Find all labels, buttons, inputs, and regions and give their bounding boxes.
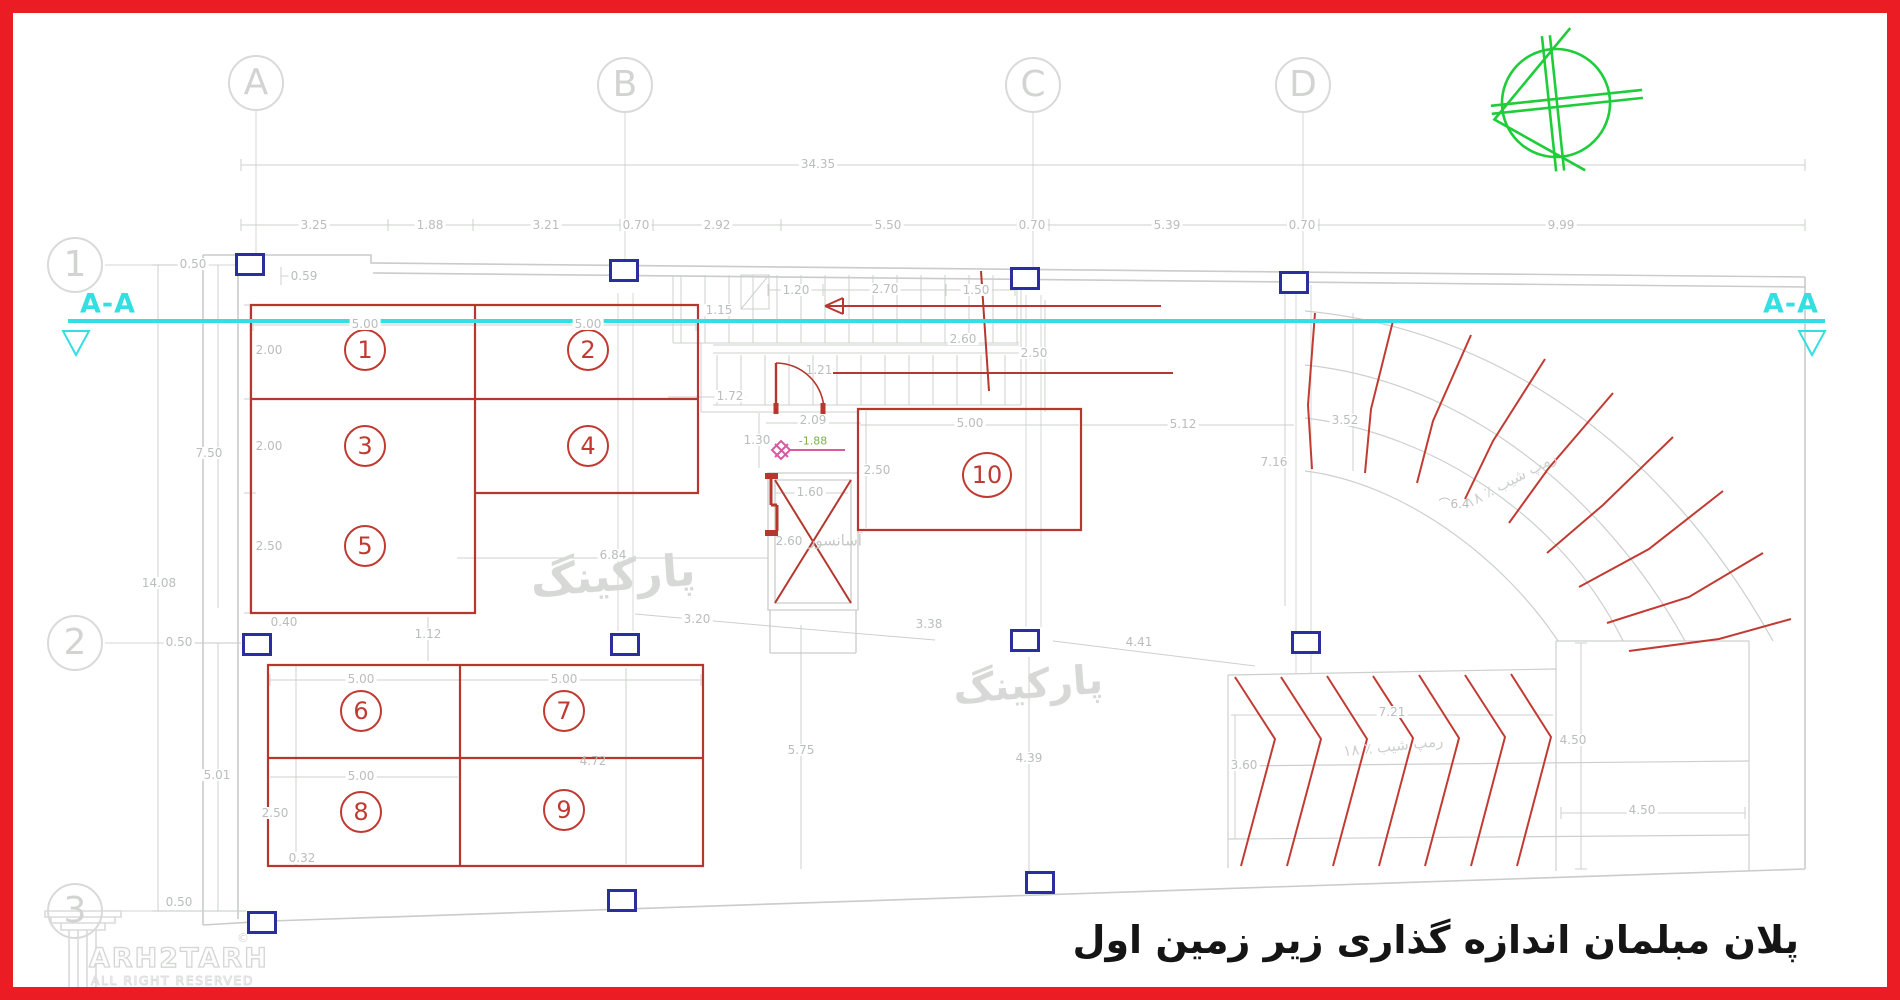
straight-ramp-edges bbox=[1228, 641, 1749, 871]
dim-ub-250: 2.50 bbox=[254, 540, 285, 552]
dim-lb-500b: 5.00 bbox=[549, 673, 580, 685]
dim-left-059: 0.59 bbox=[289, 270, 320, 282]
parking-spot-1: 1 bbox=[344, 329, 386, 371]
dim-el-160: 1.60 bbox=[795, 486, 826, 498]
dim-st-130: 1.30 bbox=[742, 434, 773, 446]
dim-lb-500c: 5.00 bbox=[346, 770, 377, 782]
section-line-a-a bbox=[63, 321, 1825, 355]
spot-8-number: 8 bbox=[353, 800, 368, 824]
dim-st-260: 2.60 bbox=[948, 333, 979, 345]
parking-spot-2: 2 bbox=[567, 329, 609, 371]
dim-st-150: 1.50 bbox=[961, 284, 992, 296]
column-r2-c bbox=[1010, 629, 1040, 652]
axis-row-1: 1 bbox=[47, 237, 103, 293]
dim-bt-439: 4.39 bbox=[1014, 752, 1045, 764]
dim-s10-500: 5.00 bbox=[955, 417, 986, 429]
axis-row-1-label: 1 bbox=[64, 247, 87, 283]
dim-lb-472: 4.72 bbox=[578, 755, 609, 767]
dim-el-260: 2.60 bbox=[774, 535, 805, 547]
parking-spot-3: 3 bbox=[344, 425, 386, 467]
spot-10-number: 10 bbox=[972, 463, 1003, 487]
dim-rp-450h: 4.50 bbox=[1627, 804, 1658, 816]
column-r2-b bbox=[610, 633, 640, 656]
dim-bt-338: 3.38 bbox=[914, 618, 945, 630]
column-r1-a bbox=[235, 253, 265, 276]
dim-rp-360: 3.60 bbox=[1229, 759, 1260, 771]
dim-top-1: 1.88 bbox=[415, 219, 446, 231]
copyright-icon: © bbox=[237, 931, 249, 945]
spot-7-number: 7 bbox=[556, 699, 571, 723]
dim-ub-500b: 5.00 bbox=[573, 318, 604, 330]
dim-lb-112: 1.12 bbox=[413, 628, 444, 640]
spot-2-number: 2 bbox=[580, 338, 595, 362]
brand-logo-text: ARH2TARH bbox=[89, 943, 269, 974]
dim-top-0: 3.25 bbox=[299, 219, 330, 231]
dim-st-209: 2.09 bbox=[798, 414, 829, 426]
dim-left-1408: 14.08 bbox=[140, 577, 178, 589]
floorplan-sheet: A B C D 1 2 3 A-A A-A 1 2 3 4 5 6 7 8 9 … bbox=[0, 0, 1900, 1000]
axis-col-d-label: D bbox=[1289, 67, 1317, 103]
dim-ub-500a: 5.00 bbox=[350, 318, 381, 330]
dim-lb-500a: 5.00 bbox=[346, 673, 377, 685]
spot-9-number: 9 bbox=[556, 798, 571, 822]
dim-top-5: 5.50 bbox=[873, 219, 904, 231]
axis-col-b: B bbox=[597, 57, 653, 113]
parking-spot-6: 6 bbox=[340, 690, 382, 732]
spot-4-number: 4 bbox=[580, 434, 595, 458]
level-marker-value: -1.88 bbox=[797, 436, 829, 447]
brand-logo: ARH2TARH © ALL RIGHT RESERVED bbox=[41, 883, 301, 1000]
dim-ub-200b: 2.00 bbox=[254, 440, 285, 452]
dim-rp-352: 3.52 bbox=[1330, 414, 1361, 426]
parking-spot-8: 8 bbox=[340, 791, 382, 833]
parking-spot-10: 10 bbox=[962, 452, 1012, 498]
axis-row-2: 2 bbox=[47, 615, 103, 671]
column-r1-d bbox=[1279, 271, 1309, 294]
sheet-title: پلان مبلمان اندازه گذاری زیر زمین اول bbox=[999, 918, 1799, 962]
dim-top-6: 0.70 bbox=[1017, 219, 1048, 231]
parking-spot-9: 9 bbox=[543, 789, 585, 831]
dim-st-121: 1.21 bbox=[804, 364, 835, 376]
dim-ub-040: 0.40 bbox=[269, 616, 300, 628]
dim-rp-450v: 4.50 bbox=[1558, 734, 1589, 746]
section-label-right: A-A bbox=[1763, 289, 1819, 320]
parking-spot-7: 7 bbox=[543, 690, 585, 732]
column-r3-b bbox=[607, 889, 637, 912]
dim-top-7: 5.39 bbox=[1152, 219, 1183, 231]
axis-col-a: A bbox=[228, 55, 284, 111]
dim-bt-441: 4.41 bbox=[1124, 636, 1155, 648]
spot-5-number: 5 bbox=[357, 534, 372, 558]
spot-3-number: 3 bbox=[357, 434, 372, 458]
axis-col-b-label: B bbox=[613, 67, 638, 103]
compass-icon bbox=[1484, 21, 1650, 179]
section-label-left: A-A bbox=[80, 289, 136, 320]
axis-row-2-label: 2 bbox=[64, 625, 87, 661]
spot-6-number: 6 bbox=[353, 699, 368, 723]
parking-block-lower bbox=[268, 665, 703, 866]
dim-lb-320: 3.20 bbox=[682, 613, 713, 625]
column-r1-b bbox=[609, 259, 639, 282]
dim-lb-250: 2.50 bbox=[260, 807, 291, 819]
elevator-label: آسانسور bbox=[806, 534, 864, 549]
dim-s10-250: 2.50 bbox=[862, 464, 893, 476]
dim-bt-575: 5.75 bbox=[786, 744, 817, 756]
dim-total-top: 34.35 bbox=[799, 158, 837, 170]
building-outline bbox=[203, 255, 1805, 925]
dim-rp-721: 7.21 bbox=[1377, 706, 1408, 718]
spot-1-number: 1 bbox=[357, 338, 372, 362]
dim-st-270: 2.70 bbox=[870, 283, 901, 295]
column-r3-c bbox=[1025, 871, 1055, 894]
dim-lb-032: 0.32 bbox=[287, 852, 318, 864]
dim-st-172: 1.72 bbox=[715, 390, 746, 402]
dim-ub-200a: 2.00 bbox=[254, 344, 285, 356]
dim-top-4: 2.92 bbox=[702, 219, 733, 231]
parking-spot-5: 5 bbox=[344, 525, 386, 567]
elevator-shaft bbox=[768, 473, 858, 653]
parking-spot-4: 4 bbox=[567, 425, 609, 467]
dim-st-120: 1.20 bbox=[781, 284, 812, 296]
dim-top-3: 0.70 bbox=[621, 219, 652, 231]
dim-left-050a: 0.50 bbox=[178, 258, 209, 270]
dim-left-501: 5.01 bbox=[202, 769, 233, 781]
axis-col-c-label: C bbox=[1020, 67, 1045, 103]
column-r2-a bbox=[242, 633, 272, 656]
axis-col-a-label: A bbox=[244, 65, 269, 101]
dim-left-050b: 0.50 bbox=[164, 636, 195, 648]
dim-top-8: 0.70 bbox=[1287, 219, 1318, 231]
dim-s10-512: 5.12 bbox=[1168, 418, 1199, 430]
axis-col-d: D bbox=[1275, 57, 1331, 113]
dim-top-9: 9.99 bbox=[1546, 219, 1577, 231]
axis-col-c: C bbox=[1005, 57, 1061, 113]
dim-left-750: 7.50 bbox=[194, 447, 225, 459]
brand-logo-subtext: ALL RIGHT RESERVED bbox=[91, 973, 254, 988]
curved-ramp-edges bbox=[1305, 311, 1773, 641]
dim-s10-716: 7.16 bbox=[1259, 456, 1290, 468]
dim-top-2: 3.21 bbox=[531, 219, 562, 231]
column-r1-c bbox=[1010, 267, 1040, 290]
curved-ramp-hatching bbox=[1308, 313, 1791, 651]
column-r2-d bbox=[1291, 631, 1321, 654]
dimension-lines bbox=[152, 159, 1805, 911]
dim-st-115: 1.15 bbox=[704, 304, 735, 316]
dim-st-250: 2.50 bbox=[1019, 347, 1050, 359]
